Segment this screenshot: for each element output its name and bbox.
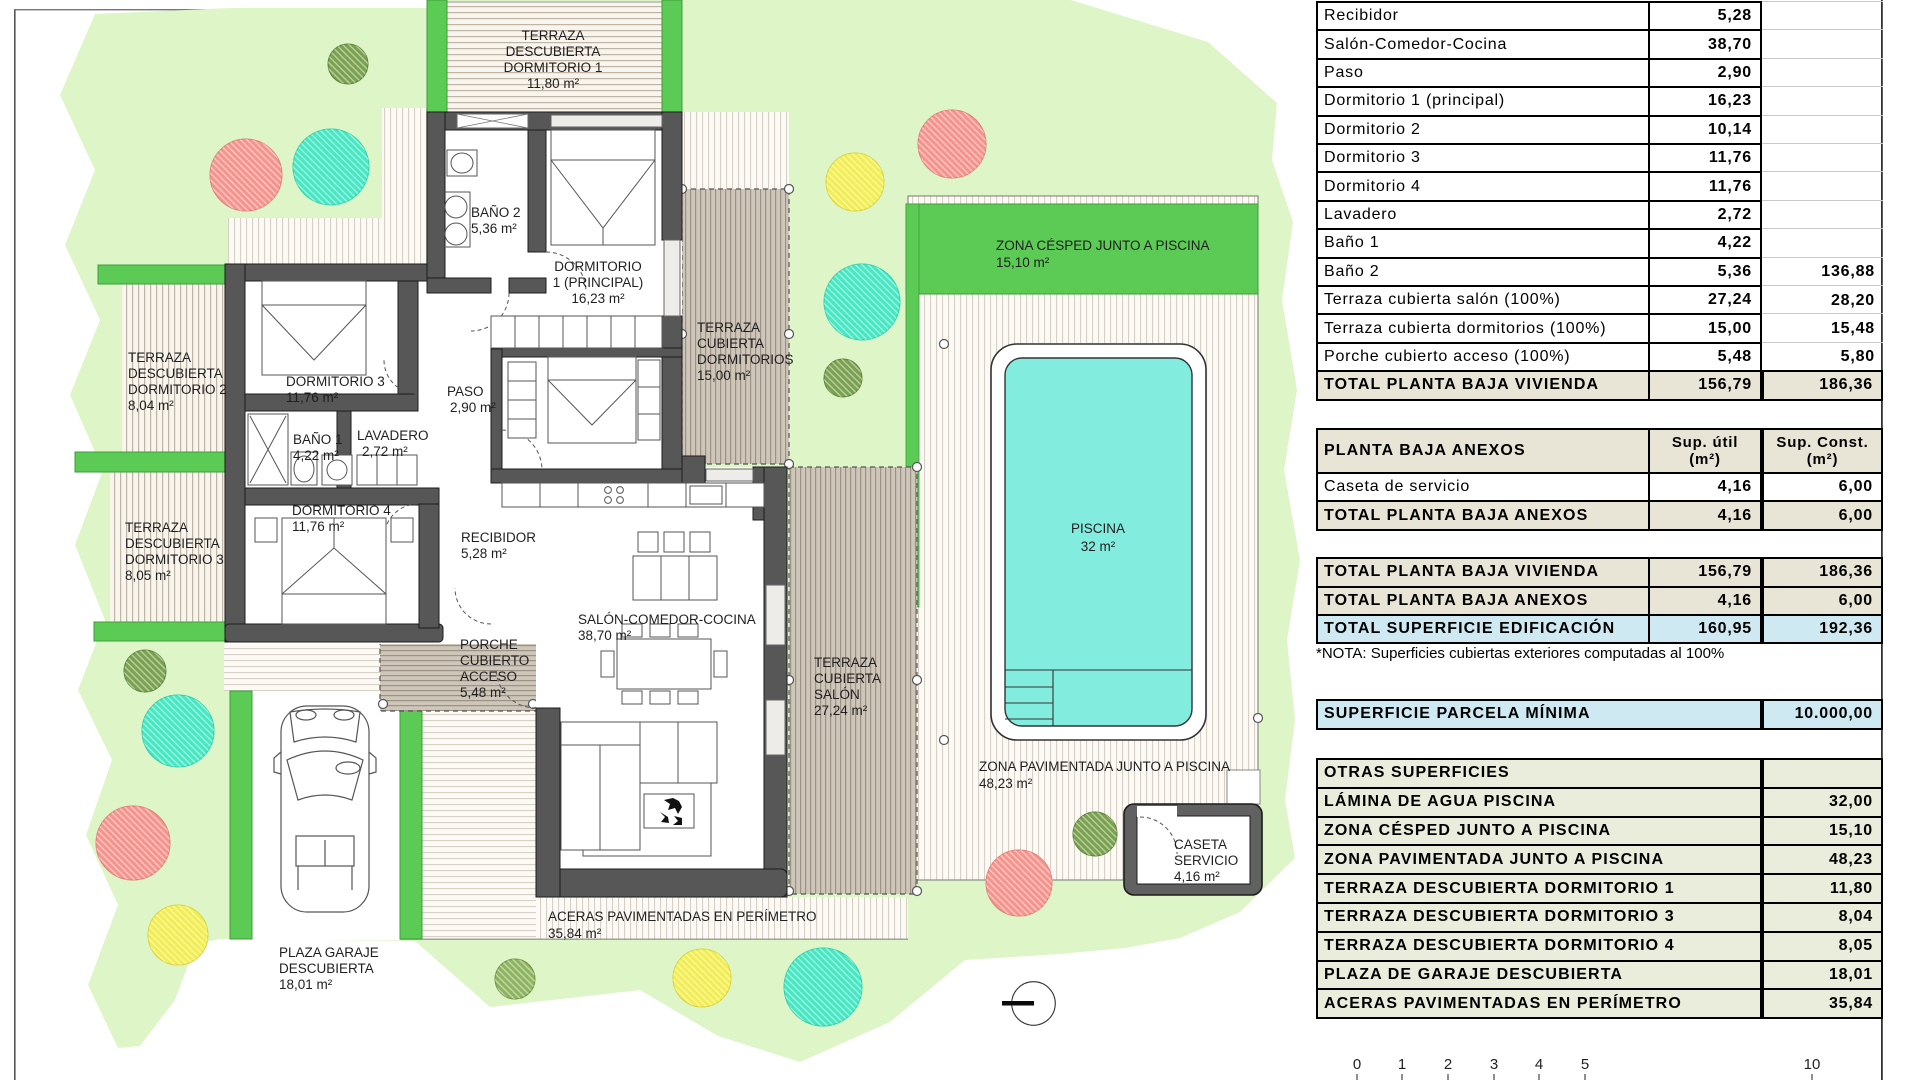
svg-text:DESCUBIERTA: DESCUBIERTA [128, 366, 223, 381]
svg-text:5,48 m²: 5,48 m² [460, 685, 506, 700]
svg-text:CUBIERTO: CUBIERTO [460, 653, 529, 668]
svg-text:35,84 m²: 35,84 m² [548, 926, 602, 941]
svg-text:CUBIERTA: CUBIERTA [814, 671, 881, 686]
svg-text:15,10 m²: 15,10 m² [996, 255, 1050, 270]
svg-text:1 (PRINCIPAL): 1 (PRINCIPAL) [553, 275, 644, 290]
svg-text:RECIBIDOR: RECIBIDOR [461, 530, 536, 545]
svg-text:11,80 m²: 11,80 m² [527, 76, 580, 91]
svg-text:8,04 m²: 8,04 m² [128, 398, 174, 413]
svg-text:ZONA CÉSPED JUNTO A PISCINA: ZONA CÉSPED JUNTO A PISCINA [996, 238, 1210, 253]
svg-text:5,36 m²: 5,36 m² [471, 221, 517, 236]
svg-text:DESCUBIERTA: DESCUBIERTA [506, 44, 601, 59]
svg-text:ACERAS PAVIMENTADAS EN PERÍMET: ACERAS PAVIMENTADAS EN PERÍMETRO [548, 909, 817, 924]
svg-text:TERRAZA: TERRAZA [128, 350, 191, 365]
svg-text:8,05 m²: 8,05 m² [125, 568, 171, 583]
svg-text:DORMITORIO 3: DORMITORIO 3 [286, 374, 385, 389]
svg-text:38,70 m²: 38,70 m² [578, 628, 632, 643]
svg-text:CUBIERTA: CUBIERTA [697, 336, 764, 351]
svg-text:5,28 m²: 5,28 m² [461, 546, 507, 561]
svg-text:DORMITORIO 4: DORMITORIO 4 [292, 503, 391, 518]
svg-text:PISCINA: PISCINA [1071, 521, 1125, 536]
svg-text:ZONA PAVIMENTADA JUNTO A PISCI: ZONA PAVIMENTADA JUNTO A PISCINA [979, 759, 1230, 774]
svg-text:DORMITORIO 2: DORMITORIO 2 [128, 382, 227, 397]
svg-text:TERRAZA: TERRAZA [521, 28, 584, 43]
svg-text:SERVICIO: SERVICIO [1174, 853, 1238, 868]
svg-text:DORMITORIO: DORMITORIO [554, 259, 642, 274]
svg-text:11,76 m²: 11,76 m² [292, 519, 345, 534]
svg-text:TERRAZA: TERRAZA [697, 320, 760, 335]
svg-text:CASETA: CASETA [1174, 837, 1227, 852]
svg-text:DORMITORIOS: DORMITORIOS [697, 352, 794, 367]
svg-text:11,76 m²: 11,76 m² [286, 390, 339, 405]
svg-text:PORCHE: PORCHE [460, 637, 518, 652]
svg-text:ACCESO: ACCESO [460, 669, 517, 684]
svg-text:BAÑO 1: BAÑO 1 [293, 432, 343, 447]
svg-text:4,16 m²: 4,16 m² [1174, 869, 1220, 884]
svg-text:27,24 m²: 27,24 m² [814, 703, 868, 718]
svg-text:DORMITORIO 1: DORMITORIO 1 [504, 60, 603, 75]
svg-text:PLAZA GARAJE: PLAZA GARAJE [279, 945, 379, 960]
svg-text:2,90 m²: 2,90 m² [450, 400, 496, 415]
svg-text:SALÓN: SALÓN [814, 687, 860, 702]
svg-text:BAÑO 2: BAÑO 2 [471, 205, 521, 220]
svg-text:2,72 m²: 2,72 m² [362, 444, 408, 459]
svg-text:DORMITORIO 3: DORMITORIO 3 [125, 552, 224, 567]
svg-text:16,23 m²: 16,23 m² [571, 291, 625, 306]
svg-text:18,01 m²: 18,01 m² [279, 977, 333, 992]
svg-text:48,23 m²: 48,23 m² [979, 776, 1033, 791]
svg-text:32 m²: 32 m² [1081, 539, 1116, 554]
svg-text:SALÓN-COMEDOR-COCINA: SALÓN-COMEDOR-COCINA [578, 612, 756, 627]
svg-text:15,00 m²: 15,00 m² [697, 368, 751, 383]
svg-text:DESCUBIERTA: DESCUBIERTA [279, 961, 374, 976]
svg-text:4,22 m²: 4,22 m² [293, 448, 339, 463]
svg-text:DESCUBIERTA: DESCUBIERTA [125, 536, 220, 551]
svg-text:TERRAZA: TERRAZA [125, 520, 188, 535]
svg-text:TERRAZA: TERRAZA [814, 655, 877, 670]
svg-text:LAVADERO: LAVADERO [357, 428, 429, 443]
svg-text:PASO: PASO [447, 384, 484, 399]
